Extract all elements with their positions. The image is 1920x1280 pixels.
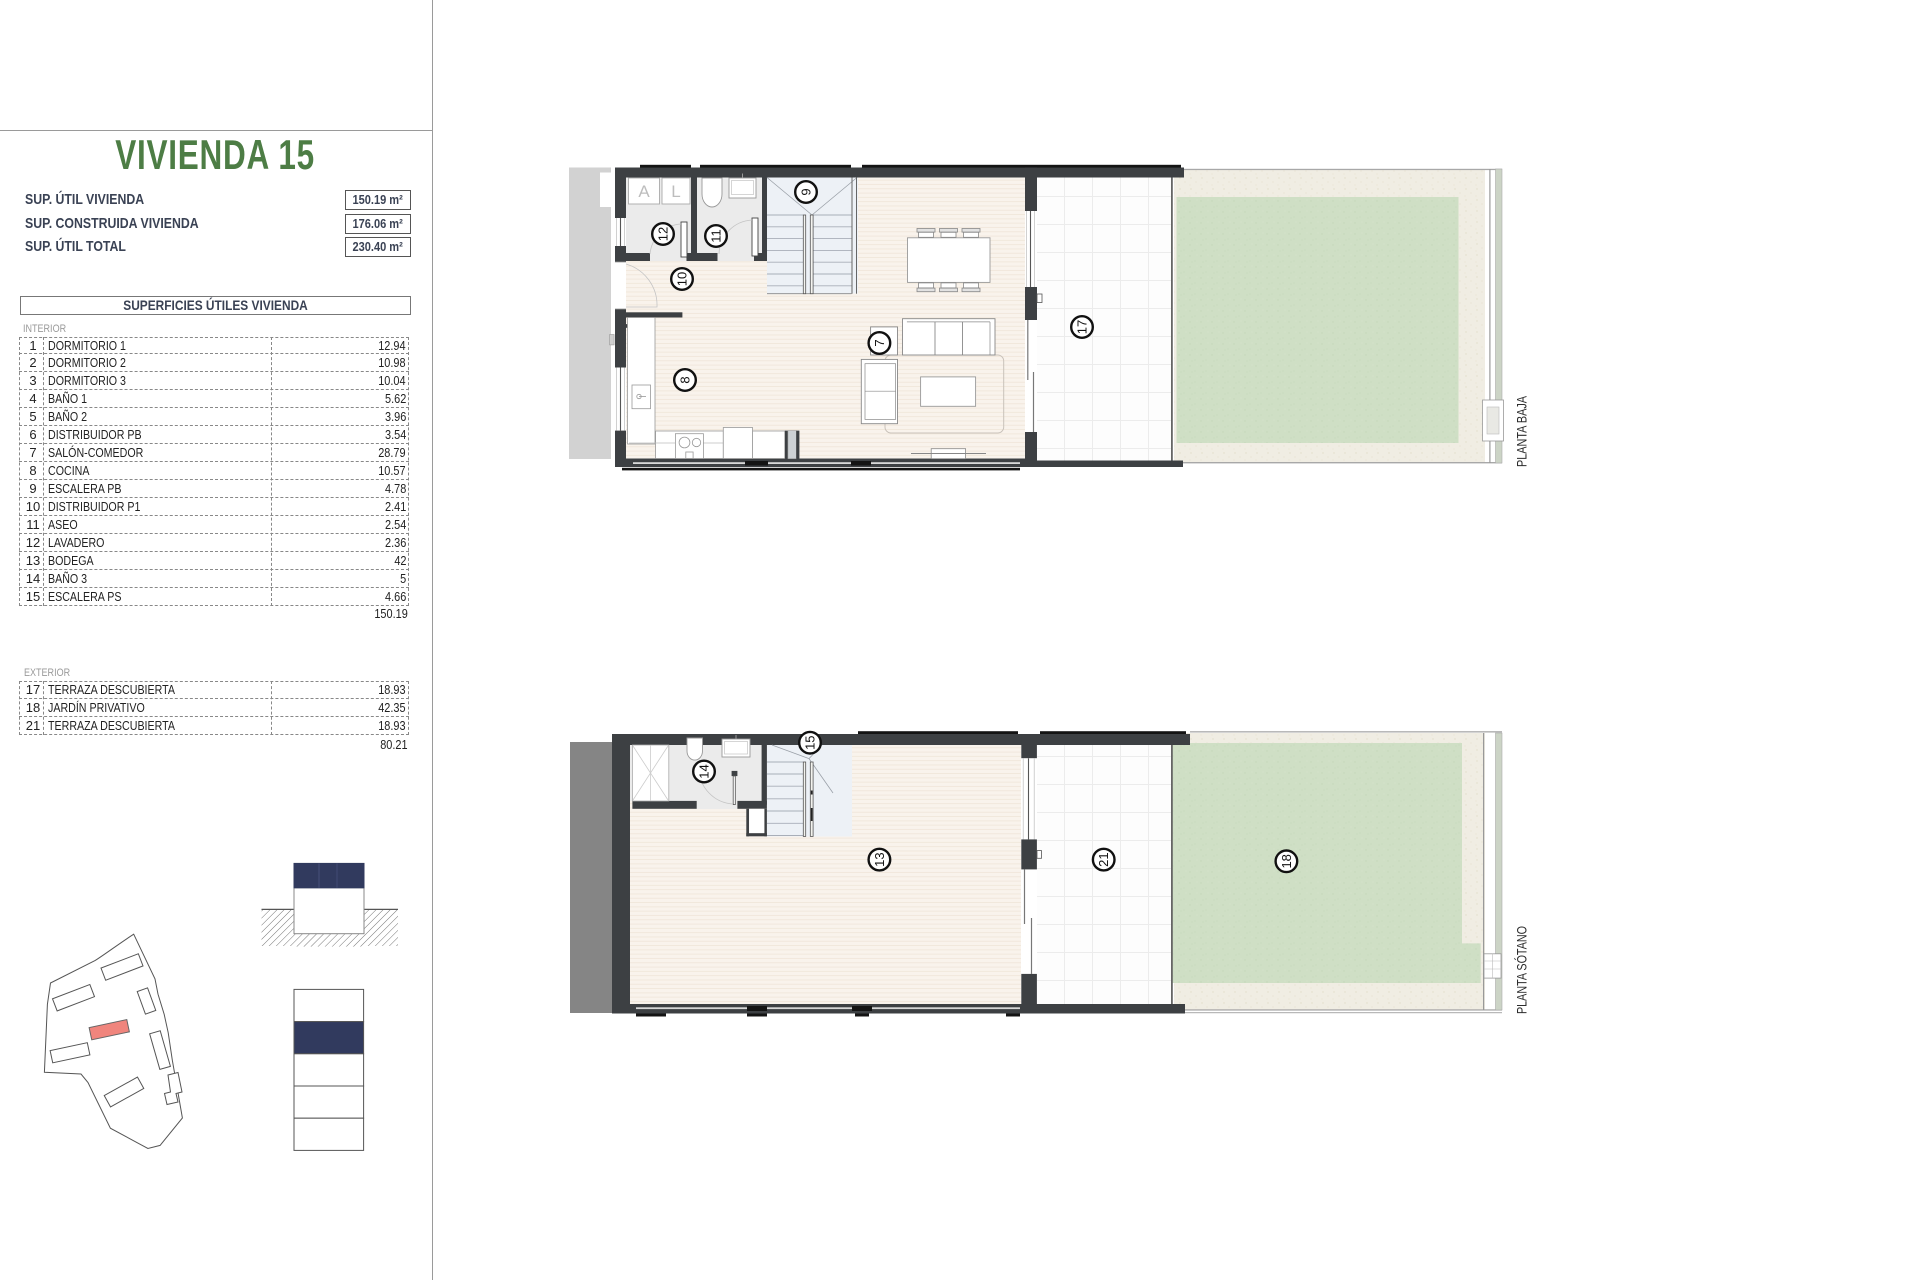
svg-text:18: 18 bbox=[1279, 854, 1294, 868]
svg-text:10: 10 bbox=[675, 272, 690, 286]
svg-text:PLANTA BAJA: PLANTA BAJA bbox=[1515, 396, 1530, 467]
svg-text:14: 14 bbox=[697, 764, 712, 778]
svg-text:12: 12 bbox=[656, 227, 671, 241]
svg-text:7: 7 bbox=[872, 339, 887, 346]
svg-text:21: 21 bbox=[1096, 852, 1111, 866]
svg-text:8: 8 bbox=[678, 376, 693, 383]
svg-text:L: L bbox=[671, 182, 680, 201]
svg-text:15: 15 bbox=[803, 735, 818, 749]
svg-text:A: A bbox=[638, 182, 650, 201]
svg-text:PLANTA SÓTANO: PLANTA SÓTANO bbox=[1515, 926, 1530, 1014]
svg-text:17: 17 bbox=[1075, 320, 1090, 334]
svg-text:11: 11 bbox=[709, 229, 724, 243]
svg-text:9: 9 bbox=[799, 188, 814, 195]
svg-text:13: 13 bbox=[872, 852, 887, 866]
